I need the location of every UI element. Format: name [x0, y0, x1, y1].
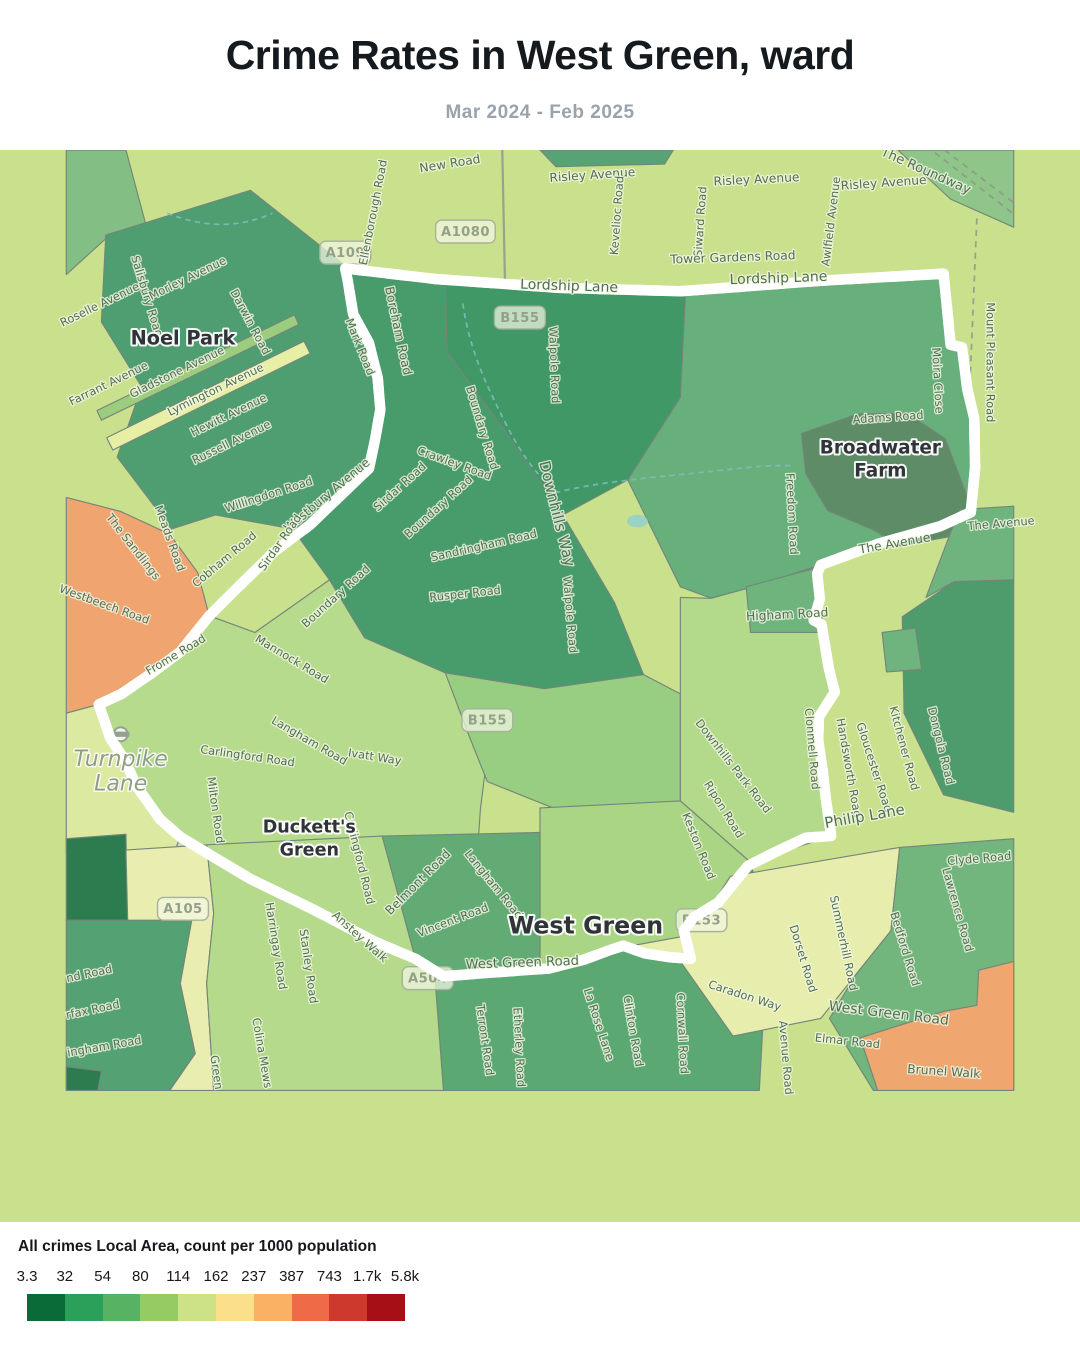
road-label: Lordship Lane	[520, 277, 618, 296]
legend-tick-value: 32	[56, 1268, 73, 1285]
page-title: Crime Rates in West Green, ward	[0, 32, 1080, 79]
legend-color-swatch	[367, 1294, 405, 1321]
legend-tick-value: 237	[241, 1268, 266, 1285]
legend-tick-value: 1.7k	[353, 1268, 381, 1285]
road-badge: B155	[462, 709, 513, 732]
page: Crime Rates in West Green, ward Mar 2024…	[0, 0, 1080, 1350]
legend-tick-value: 54	[94, 1268, 111, 1285]
legend-color-swatch	[27, 1294, 65, 1321]
road-label: Lordship Lane	[729, 269, 827, 288]
legend-color-swatch	[103, 1294, 141, 1321]
svg-text:A105: A105	[163, 902, 202, 917]
legend-tick-value: 743	[317, 1268, 342, 1285]
svg-text:B155: B155	[500, 311, 539, 326]
date-range: Mar 2024 - Feb 2025	[0, 102, 1080, 124]
legend-color-swatch	[65, 1294, 103, 1321]
legend-footer: All crimes Local Area, count per 1000 po…	[0, 1222, 1080, 1350]
legend-color-swatch	[329, 1294, 367, 1321]
legend-color-swatch	[140, 1294, 178, 1321]
legend-color-swatch	[178, 1294, 216, 1321]
road-badge: B155	[494, 306, 545, 329]
crime-map: A109A1080B155B155A105B153A504 New RoadRi…	[0, 150, 1080, 1222]
legend-color-scale	[27, 1294, 405, 1321]
legend-tick-value: 5.8k	[391, 1268, 419, 1285]
legend-tick-value: 3.3	[17, 1268, 38, 1285]
road-label: Walpole Road	[546, 326, 563, 404]
legend-tick-value: 162	[203, 1268, 228, 1285]
legend-title: All crimes Local Area, count per 1000 po…	[18, 1238, 377, 1256]
pond	[627, 515, 648, 527]
road-badge: A105	[158, 897, 209, 920]
road-badge: A1080	[436, 220, 496, 243]
road-label: Mount Pleasant Road	[984, 302, 998, 422]
svg-text:B155: B155	[468, 714, 507, 729]
svg-text:A1080: A1080	[441, 225, 490, 240]
legend-color-swatch	[292, 1294, 330, 1321]
legend-tick-value: 80	[132, 1268, 149, 1285]
legend-color-swatch	[254, 1294, 292, 1321]
area-label: West Green	[508, 911, 663, 939]
map-canvas: A109A1080B155B155A105B153A504 New RoadRi…	[0, 150, 1080, 1222]
legend-tick-value: 114	[166, 1268, 190, 1285]
area-label: Noel Park	[131, 327, 237, 350]
legend-color-swatch	[216, 1294, 254, 1321]
legend-tick-value: 387	[279, 1268, 304, 1285]
